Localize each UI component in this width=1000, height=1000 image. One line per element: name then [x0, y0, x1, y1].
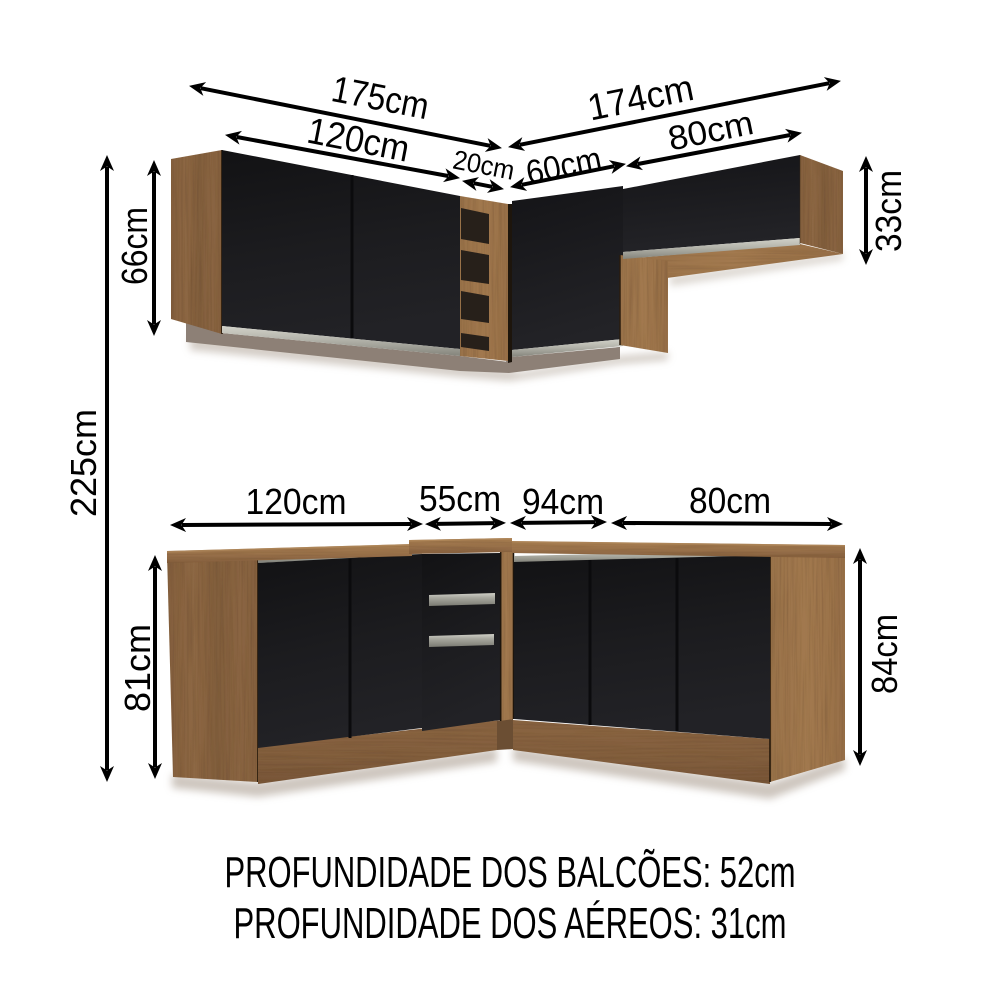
svg-text:80cm: 80cm [689, 480, 771, 521]
svg-text:PROFUNDIDADE DOS AÉREOS: 31cm: PROFUNDIDADE DOS AÉREOS: 31cm [234, 899, 787, 948]
svg-text:66cm: 66cm [114, 207, 155, 285]
svg-text:33cm: 33cm [868, 170, 909, 252]
svg-text:94cm: 94cm [522, 481, 604, 522]
svg-text:81cm: 81cm [117, 624, 158, 712]
svg-text:55cm: 55cm [419, 478, 501, 519]
svg-text:120cm: 120cm [246, 481, 347, 522]
svg-text:225cm: 225cm [63, 409, 104, 517]
svg-text:84cm: 84cm [864, 614, 905, 694]
svg-text:PROFUNDIDADE DOS BALCÕES: 52cm: PROFUNDIDADE DOS BALCÕES: 52cm [225, 847, 796, 897]
